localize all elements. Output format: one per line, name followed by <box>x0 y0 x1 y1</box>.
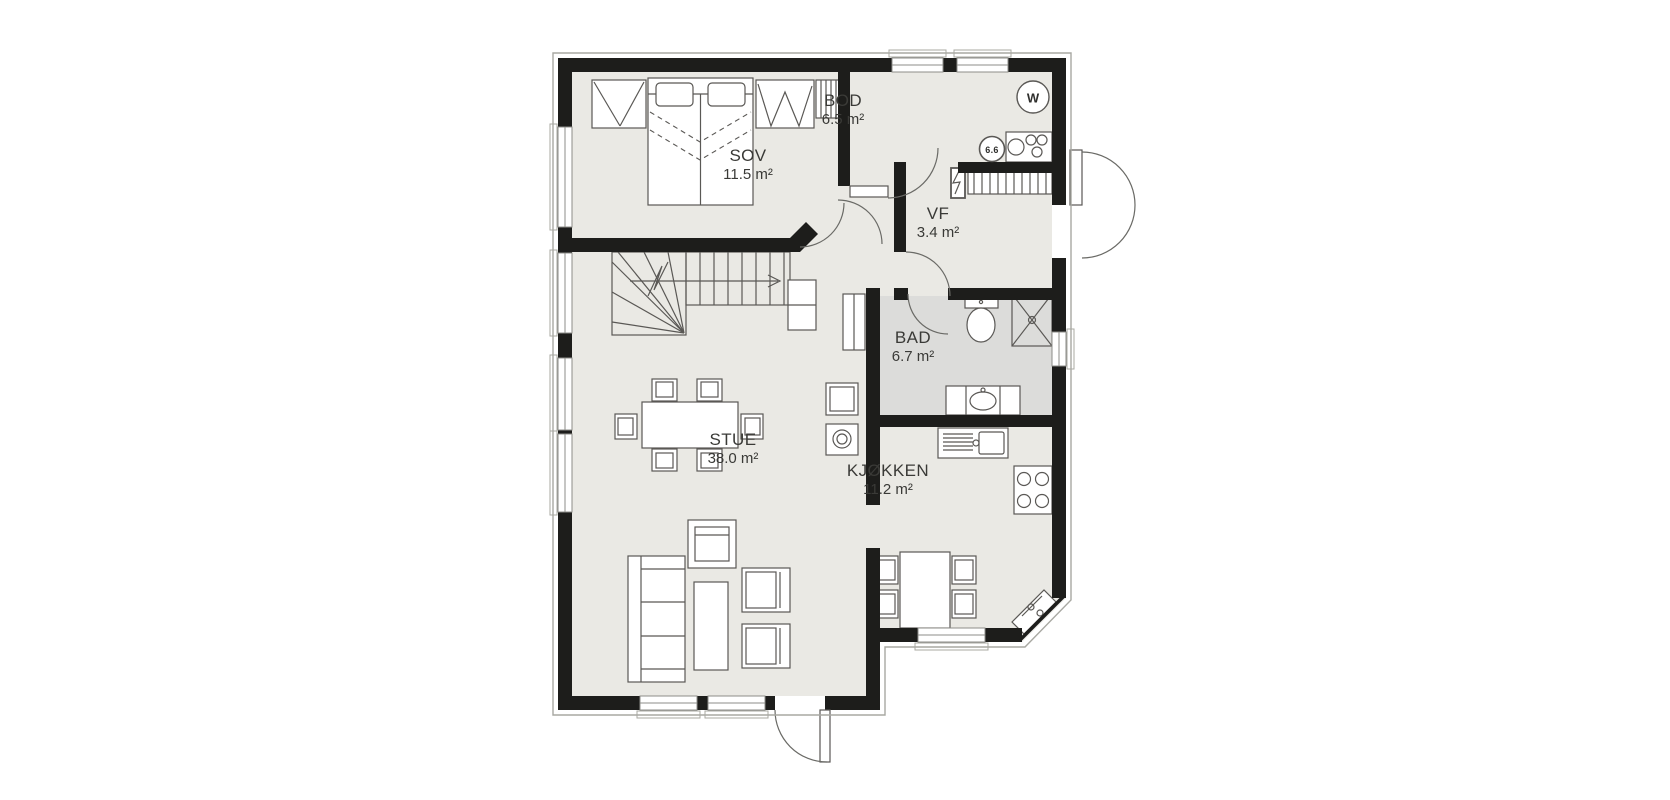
kitchen-table <box>900 552 950 628</box>
terrace-door-swing <box>775 710 827 762</box>
wall-bad-kitchen <box>866 415 1052 427</box>
terrace-door-leaf <box>820 710 830 762</box>
double-bed <box>648 78 753 205</box>
wall-sov-bod <box>838 72 850 186</box>
room-label-bod: BOD 6.5 m² <box>822 91 865 128</box>
room-name: BAD <box>892 328 935 348</box>
wall-kitchen-left-lower <box>866 548 880 628</box>
room-area: 6.5 m² <box>822 111 865 128</box>
room-area: 38.0 m² <box>708 450 759 467</box>
room-name: VF <box>917 204 960 224</box>
coat-rack <box>968 170 1052 194</box>
room-name: SOV <box>723 146 773 166</box>
wall-nook-bottom <box>958 162 1052 173</box>
room-area: 3.4 m² <box>917 224 960 241</box>
armchair-bottom <box>742 624 790 668</box>
wall-bad-top-right <box>948 288 1052 300</box>
entrance-door-swing <box>1082 152 1135 258</box>
wall-bad-left <box>866 288 880 427</box>
entrance-door-opening <box>1052 205 1066 258</box>
pillow <box>656 83 693 106</box>
pillow <box>708 83 745 106</box>
room-area: 6.7 m² <box>892 348 935 365</box>
floor-plan: SOV 11.5 m² BOD 6.5 m² VF 3.4 m² BAD 6.7… <box>0 0 1670 800</box>
cabinet-marker-label: 6.6 <box>985 145 998 155</box>
room-area: 11.5 m² <box>723 166 773 183</box>
exterior-wall-right <box>1052 58 1066 598</box>
stove <box>1014 466 1052 514</box>
room-name: STUE <box>708 430 759 450</box>
room-name: BOD <box>822 91 865 111</box>
room-name: KJØKKEN <box>847 461 929 481</box>
wall-vf-left <box>894 162 906 252</box>
wardrobe-left <box>592 80 646 128</box>
water-heater-label: W <box>1027 91 1039 106</box>
room-area: 11.2 m² <box>847 481 929 498</box>
coffee-table <box>694 582 728 670</box>
terrace-door-opening <box>775 696 825 710</box>
room-label-stue: STUE 38.0 m² <box>708 430 759 467</box>
room-label-bad: BAD 6.7 m² <box>892 328 935 365</box>
tv-bench <box>688 520 736 568</box>
room-label-sov: SOV 11.5 m² <box>723 146 773 183</box>
bod-door-leaf <box>850 186 888 197</box>
sofa <box>628 556 685 682</box>
room-label-kjokken: KJØKKEN 11.2 m² <box>847 461 929 498</box>
armchair-top <box>742 568 790 612</box>
wardrobe-right <box>756 80 814 128</box>
wall-sov-bottom <box>572 238 790 252</box>
kitchen-sink-counter <box>938 428 1008 458</box>
wall-bad-top-left <box>894 288 908 300</box>
bathroom-vanity <box>946 386 1020 415</box>
laundry-unit <box>1006 132 1052 162</box>
entrance-door-leaf <box>1070 150 1082 205</box>
room-label-vf: VF 3.4 m² <box>917 204 960 241</box>
